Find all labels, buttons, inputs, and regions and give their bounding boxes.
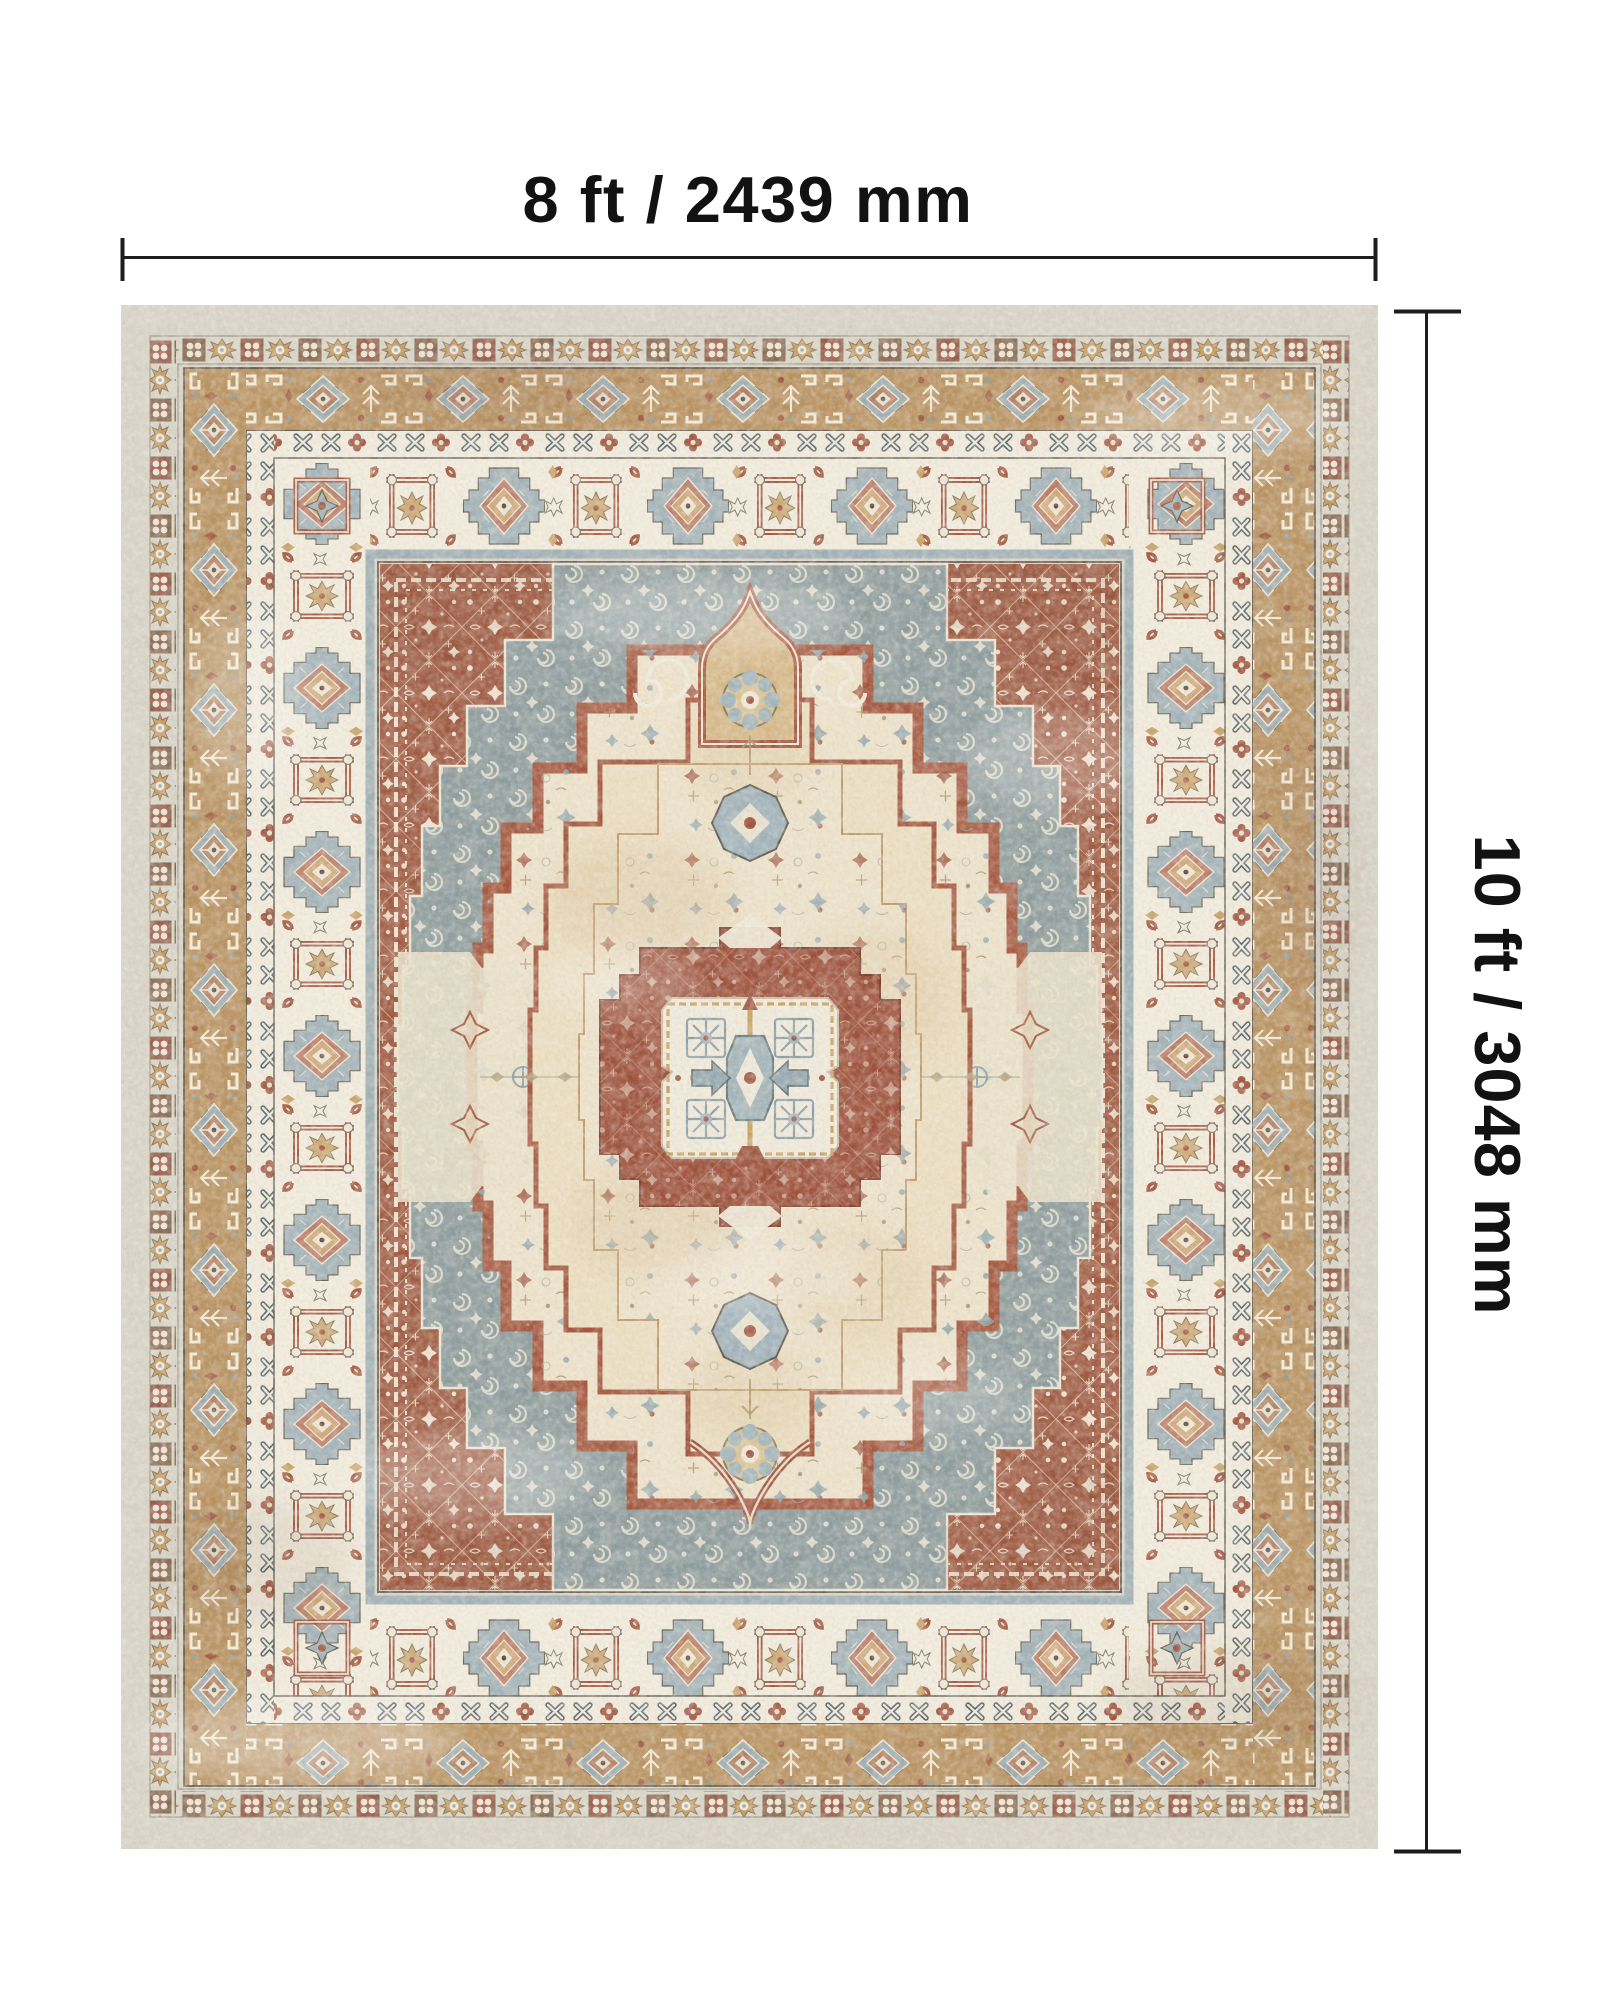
svg-text:8 ft / 2439 mm: 8 ft / 2439 mm <box>523 163 974 236</box>
svg-text:10 ft / 3048 mm: 10 ft / 3048 mm <box>1461 834 1534 1315</box>
